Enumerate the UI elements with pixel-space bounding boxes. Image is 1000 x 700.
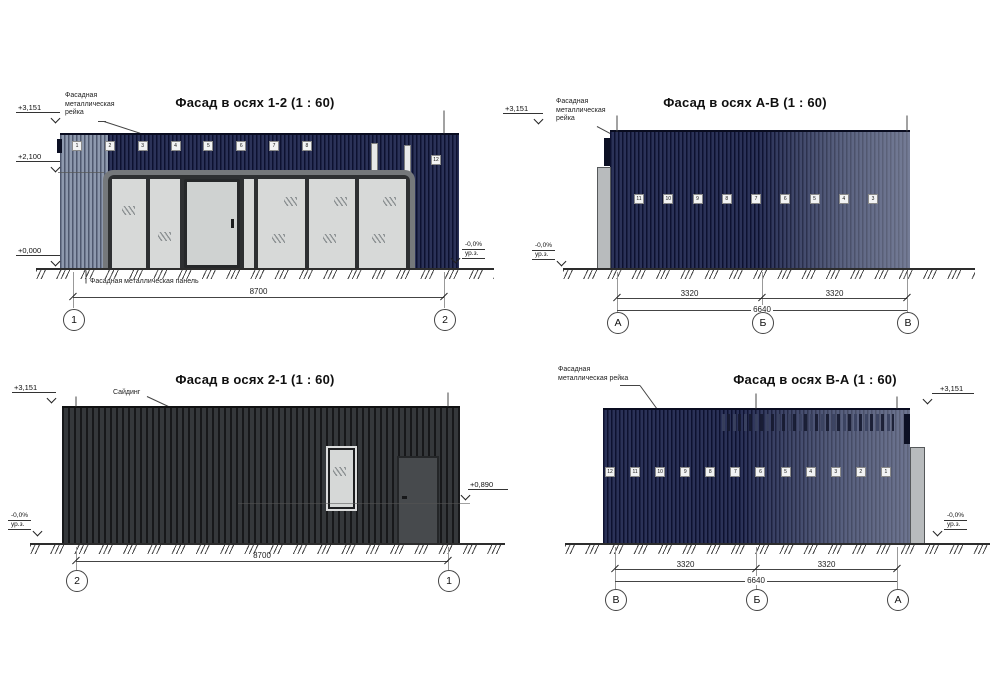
panel-tag: 11 [630,467,640,477]
panel-tag: 8 [722,194,732,204]
panel-tag: 10 [655,467,665,477]
panel-tag: 3 [138,141,148,151]
ground-level-mark: -0,0% ур.з. [8,512,31,530]
axis-bubble: Б [746,589,768,611]
axis-stub-line [907,116,908,132]
dimension-label: 3320 [762,289,907,298]
axis-bubble: А [887,589,909,611]
extension-line [907,272,908,312]
axis-stub-line [756,394,757,409]
panel-tag: 4 [839,194,849,204]
sidelight-pane [244,179,254,268]
panel-tag: 10 [663,194,673,204]
extension-line [444,272,445,308]
panel-tag: 7 [269,141,279,151]
level-mark: +3,151 [932,384,974,394]
panel-tag: 12 [605,467,615,477]
light-batten-section [60,135,108,268]
panel-tag: 4 [806,467,816,477]
facade-A-B-title: Фасад в осях А-В (1 : 60) [595,95,895,110]
facade-B-A-title: Фасад в осях В-А (1 : 60) [660,372,970,387]
leader-line [86,271,87,284]
storefront-glazing [108,175,410,268]
axis-bubble: В [605,589,627,611]
glass-reflection [272,234,285,243]
glass-reflection [158,232,171,241]
axis-bubble: А [607,312,629,334]
panel-tag: 1 [881,467,891,477]
axis-bubble: В [897,312,919,334]
edge-profile [57,139,62,153]
glass-reflection [333,467,346,476]
dimension-label-total: 6640 [615,576,897,585]
panel-tag-row: 11109876543 [634,194,878,204]
ground-hatch-pattern [565,545,990,554]
door-handle [231,219,234,228]
axis-bubble: 2 [434,309,456,331]
panel-tag: 3 [868,194,878,204]
window [328,448,355,509]
level-mark: +0,000 [16,246,60,256]
axis-stub-line [897,397,898,409]
panel-note: Фасадная металлическая панель [90,278,290,287]
batten-note: Фасадная металлическая рейка [558,366,653,383]
glass-reflection [122,206,135,215]
siding-note: Сайдинг [113,389,173,398]
axis-bubble: 2 [66,570,88,592]
ground-hatch-pattern [563,270,975,279]
door [397,456,439,545]
axis-stub-line [76,397,77,407]
glass-reflection [323,234,336,243]
glass-reflection [383,197,396,206]
panel-tag: 9 [693,194,703,204]
vertical-strip [371,143,378,171]
panel-tag-row: 12345678 [72,141,312,151]
panel-tag: 8 [705,467,715,477]
panel-tag-row: 121110987654321 [605,467,891,477]
panel-tag: 6 [236,141,246,151]
leader-line [104,121,140,134]
batten-note: Фасадная металлическая рейка [65,92,150,118]
panel-tag: 5 [781,467,791,477]
level-reference-line [238,503,470,504]
axis-stub-line [444,111,445,134]
axis-stub-line [448,393,449,407]
panel-tag: 11 [634,194,644,204]
panel-tag: 8 [302,141,312,151]
level-mark: +2,100 [16,152,60,162]
edge-profile [904,414,910,444]
panel-tag: 2 [105,141,115,151]
panel-tag: 12 [431,155,441,165]
vertical-strip [404,145,411,173]
leader-line [620,385,640,386]
panel-tag: 6 [755,467,765,477]
glass-pane [258,179,305,268]
edge-profile [604,138,610,166]
glass-reflection [372,234,385,243]
level-reference-line [58,172,104,173]
ground-level-mark: -0,0% ур.з. [944,512,967,530]
glass-pane [309,179,356,268]
dimension-label: 3320 [617,289,762,298]
glass-pane [150,179,180,268]
glass-reflection [284,197,297,206]
dimension-label: 3320 [756,560,897,569]
axis-bubble: 1 [63,309,85,331]
drawing-sheet: Фасад в осях 1-2 (1 : 60) Фасадная метал… [0,0,1000,700]
level-mark: +3,151 [12,383,56,393]
gray-side-panel [597,167,611,269]
dimension-label: 8700 [76,551,448,560]
panel-tag: 5 [203,141,213,151]
panel-tag: 3 [831,467,841,477]
panel-tag: 4 [171,141,181,151]
dimension-line [76,561,448,562]
glass-pane [112,179,146,268]
glass-pane [359,179,406,268]
wall-signage [722,414,894,431]
door-handle [402,496,407,499]
panel-tag: 2 [856,467,866,477]
level-mark: +0,890 [468,480,508,490]
axis-bubble: 1 [438,570,460,592]
axis-bubble: Б [752,312,774,334]
panel-tag: 7 [751,194,761,204]
entrance-door [184,179,240,268]
axis-stub-line [617,116,618,132]
panel-tag: 7 [730,467,740,477]
dimension-line [73,297,444,298]
ground-level-mark: -0,0% ур.з. [532,242,555,260]
gray-side-panel [910,447,925,544]
dimension-label: 8700 [73,287,444,296]
facade-1-2-title: Фасад в осях 1-2 (1 : 60) [105,95,405,110]
panel-tag: 5 [810,194,820,204]
panel-tag: 1 [72,141,82,151]
glass-reflection [334,197,347,206]
level-mark: +3,151 [503,104,543,114]
dimension-label: 3320 [615,560,756,569]
batten-note: Фасадная металлическая рейка [556,98,631,124]
level-mark: +3,151 [16,103,60,113]
facade-2-1-title: Фасад в осях 2-1 (1 : 60) [105,372,405,387]
ground-level-mark: -0,0% ур.з. [462,241,485,259]
panel-tag: 9 [680,467,690,477]
panel-tag: 6 [780,194,790,204]
